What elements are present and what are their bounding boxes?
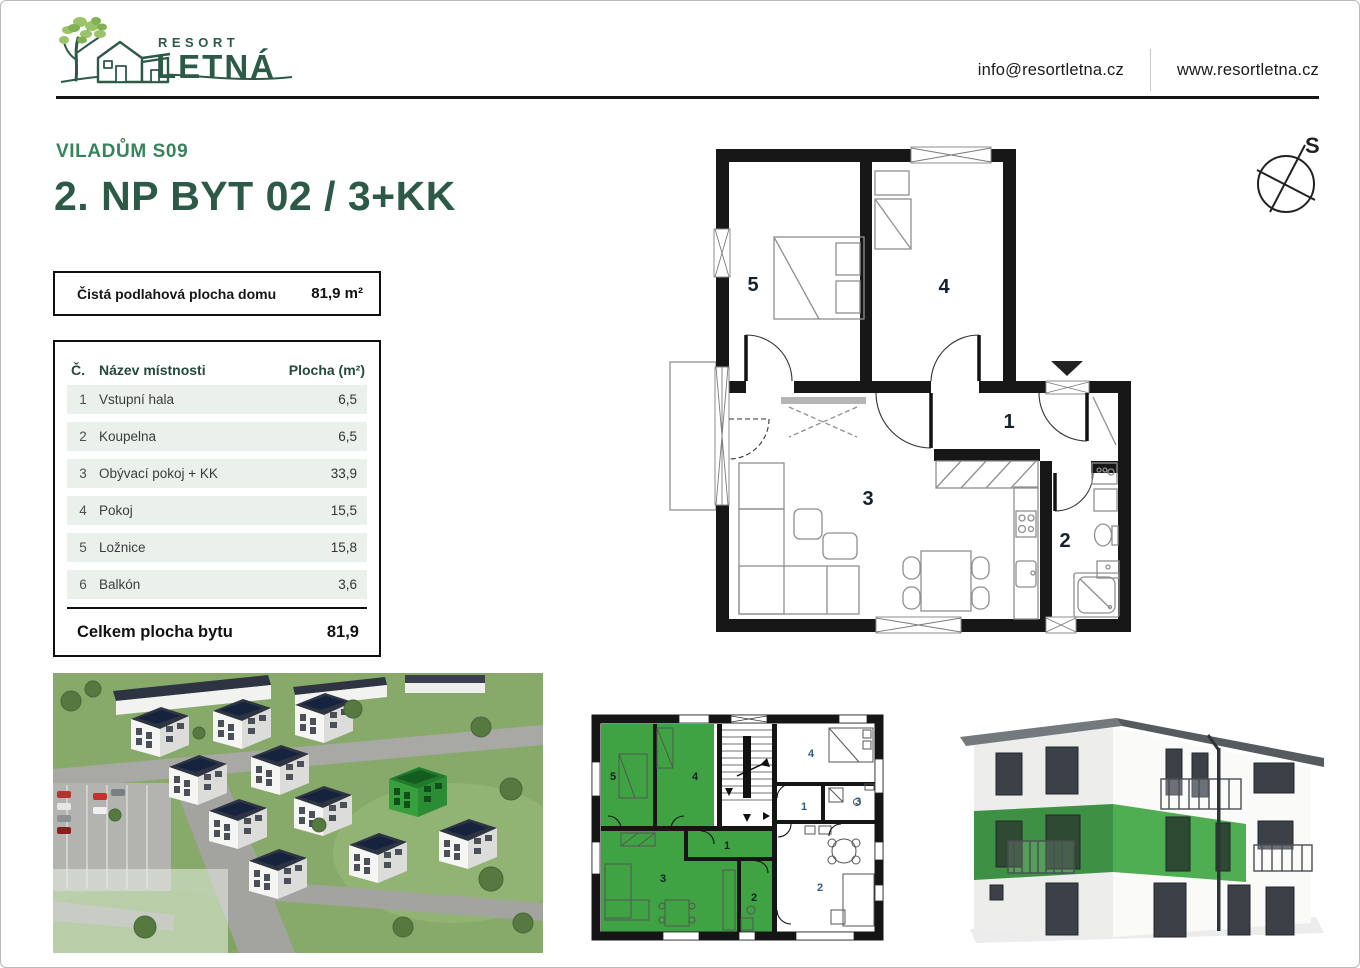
room-name: Vstupní hala <box>99 392 338 407</box>
total-label: Celkem plocha bytu <box>77 623 233 642</box>
building-render <box>956 691 1334 961</box>
plan-label-bath: 2 <box>1059 530 1070 552</box>
table-row: 6 Balkón 3,6 <box>67 570 367 599</box>
page-title: 2. NP BYT 02 / 3+KK <box>54 173 456 220</box>
room-name: Koupelna <box>99 429 338 444</box>
plan-label-bedroom: 5 <box>747 274 758 296</box>
sports-field <box>53 869 228 953</box>
ov-white-living: 2 <box>817 882 823 894</box>
room-area: 15,5 <box>331 503 367 518</box>
downpipe <box>1217 748 1221 931</box>
ov-label-bedroom: 5 <box>610 771 616 783</box>
ov-label-living: 3 <box>660 873 666 885</box>
net-area-box: Čistá podlahová plocha domu 81,9 m² <box>53 271 381 316</box>
room-number: 2 <box>67 429 99 444</box>
plan-label-living: 3 <box>862 488 873 510</box>
col-area: Plocha (m²) <box>289 362 367 378</box>
room-number: 5 <box>67 540 99 555</box>
table-row: 4 Pokoj 15,5 <box>67 496 367 525</box>
plan-label-hall: 1 <box>1003 411 1014 433</box>
header-rule <box>56 96 1319 99</box>
balcony-outline <box>670 362 716 510</box>
room-name: Obývací pokoj + KK <box>99 466 331 481</box>
room-area: 3,6 <box>338 577 367 592</box>
project-subtitle: VILADŮM S09 <box>56 141 188 163</box>
room-number: 6 <box>67 577 99 592</box>
website-link[interactable]: www.resortletna.cz <box>1177 61 1319 80</box>
contact-divider <box>1150 49 1151 91</box>
room-number: 1 <box>67 392 99 407</box>
ov-white-hall: 1 <box>801 801 807 813</box>
col-name: Název místnosti <box>99 362 289 378</box>
total-value: 81,9 <box>327 623 359 642</box>
plan-label-room: 4 <box>938 276 950 298</box>
table-row: 5 Ložnice 15,8 <box>67 533 367 562</box>
net-area-label: Čistá podlahová plocha domu <box>77 286 276 302</box>
email-link[interactable]: info@resortletna.cz <box>978 61 1124 80</box>
room-table-header: Č. Název místnosti Plocha (m²) <box>67 355 367 385</box>
site-aerial-render <box>53 673 543 953</box>
entrance-arrow-icon <box>1051 361 1083 376</box>
room-area: 6,5 <box>338 392 367 407</box>
table-row: 1 Vstupní hala 6,5 <box>67 385 367 414</box>
room-name: Balkón <box>99 577 338 592</box>
room-area: 33,9 <box>331 466 367 481</box>
brochure-page: RESORT LETNÁ info@resortletna.cz www.res… <box>0 0 1360 968</box>
apartment-floor-plan: 5 4 3 1 2 <box>661 141 1141 641</box>
table-row: 2 Koupelna 6,5 <box>67 422 367 451</box>
table-footer: Celkem plocha bytu 81,9 <box>67 609 367 655</box>
room-table: Č. Název místnosti Plocha (m²) 1 Vstupní… <box>53 340 381 657</box>
ov-label-hall: 1 <box>724 840 730 852</box>
compass-icon: S <box>1249 129 1333 229</box>
ov-white-bath: 3 <box>855 796 861 808</box>
table-row: 3 Obývací pokoj + KK 33,9 <box>67 459 367 488</box>
compass-north-label: S <box>1305 133 1320 158</box>
net-area-value: 81,9 m² <box>311 285 363 302</box>
tv-board <box>781 397 866 404</box>
resort-letna-logo: RESORT LETNÁ <box>56 11 296 97</box>
room-number: 4 <box>67 503 99 518</box>
brand-main-text: LETNÁ <box>156 48 276 85</box>
ov-label-bath: 2 <box>751 892 757 904</box>
room-name: Pokoj <box>99 503 331 518</box>
floor-overview-plan: 5 4 3 1 2 4 1 3 2 <box>591 714 891 954</box>
header-contacts: info@resortletna.cz www.resortletna.cz <box>978 49 1319 91</box>
room-area: 6,5 <box>338 429 367 444</box>
ov-white-room: 4 <box>808 748 815 760</box>
room-name: Ložnice <box>99 540 331 555</box>
col-number: Č. <box>67 362 99 378</box>
room-area: 15,8 <box>331 540 367 555</box>
room-number: 3 <box>67 466 99 481</box>
ov-label-room: 4 <box>692 771 699 783</box>
